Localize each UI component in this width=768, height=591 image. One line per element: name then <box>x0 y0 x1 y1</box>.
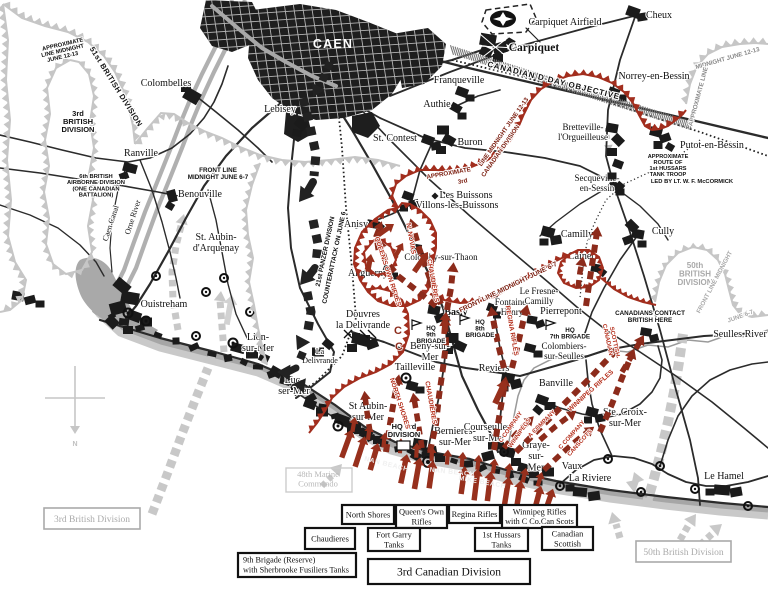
svg-text:La: La <box>316 347 325 356</box>
svg-text:with C Co.Can Scots: with C Co.Can Scots <box>505 517 574 526</box>
svg-text:Rifles: Rifles <box>411 517 431 526</box>
svg-text:Fort Garry: Fort Garry <box>376 531 412 540</box>
svg-text:Norrey-en-Bessin: Norrey-en-Bessin <box>618 71 689 82</box>
svg-text:with Sherbrooke Fusiliers Tank: with Sherbrooke Fusiliers Tanks <box>243 566 349 575</box>
svg-text:DIVISION: DIVISION <box>62 125 95 134</box>
svg-text:Camilly: Camilly <box>561 229 593 240</box>
svg-text:TANK TROOP: TANK TROOP <box>650 172 687 178</box>
svg-text:(ONE CANADIAN: (ONE CANADIAN <box>72 186 119 192</box>
svg-text:Buron: Buron <box>458 137 483 148</box>
svg-text:Winnipeg Rifles: Winnipeg Rifles <box>513 508 567 517</box>
svg-text:Camilly: Camilly <box>525 296 554 306</box>
svg-text:Villons-les-Buissons: Villons-les-Buissons <box>416 200 499 211</box>
svg-text:Pierrepont: Pierrepont <box>540 306 582 317</box>
svg-text:Ouistreham: Ouistreham <box>141 299 188 310</box>
svg-text:North Shores: North Shores <box>346 511 390 520</box>
svg-text:Delivrande: Delivrande <box>302 356 338 365</box>
svg-text:MIDNIGHT JUNE 6-7: MIDNIGHT JUNE 6-7 <box>188 174 249 181</box>
svg-text:la Delivrande: la Delivrande <box>336 320 391 331</box>
svg-text:Chaudieres: Chaudieres <box>311 535 349 544</box>
svg-text:Tailleville: Tailleville <box>395 362 436 373</box>
svg-text:St. Contest: St. Contest <box>373 133 417 144</box>
svg-text:Canadian: Canadian <box>552 530 584 539</box>
svg-text:Vaux: Vaux <box>562 461 583 472</box>
svg-text:C: C <box>394 325 402 337</box>
svg-text:Tanks: Tanks <box>492 540 512 549</box>
svg-text:Carpiquet Airfield: Carpiquet Airfield <box>528 17 601 28</box>
svg-text:Benouville: Benouville <box>178 189 222 200</box>
svg-text:3rd Canadian Division: 3rd Canadian Division <box>397 567 501 579</box>
svg-text:sur-Mer: sur-Mer <box>439 437 472 448</box>
svg-text:Queen's Own: Queen's Own <box>399 508 445 517</box>
svg-text:LED BY LT. W. F. McCORMICK: LED BY LT. W. F. McCORMICK <box>651 179 734 185</box>
svg-text:l'Orgueilleuse: l'Orgueilleuse <box>558 132 608 142</box>
svg-text:9th Brigade (Reserve): 9th Brigade (Reserve) <box>243 556 316 565</box>
svg-text:ser-Mer: ser-Mer <box>278 386 310 397</box>
svg-text:d'Arquenay: d'Arquenay <box>193 243 239 254</box>
svg-text:Le Hamel: Le Hamel <box>704 471 744 482</box>
svg-text:N: N <box>72 441 77 448</box>
svg-text:Commando: Commando <box>298 479 338 489</box>
svg-text:Carpiquet: Carpiquet <box>509 42 560 54</box>
svg-text:Colombelles: Colombelles <box>141 78 192 89</box>
svg-text:Ranville: Ranville <box>124 148 158 159</box>
svg-text:Scottish: Scottish <box>554 539 582 548</box>
svg-text:BRIGADE: BRIGADE <box>465 332 494 339</box>
svg-text:CAEN: CAEN <box>313 37 353 51</box>
svg-text:7th BRIGADE: 7th BRIGADE <box>550 334 590 341</box>
svg-text:BRIGADE: BRIGADE <box>416 338 445 345</box>
svg-text:Cully: Cully <box>652 226 674 237</box>
svg-text:BATTALION): BATTALION) <box>79 193 114 199</box>
svg-text:Regina Rifles: Regina Rifles <box>452 510 498 519</box>
svg-text:Franqueville: Franqueville <box>434 75 485 86</box>
svg-text:La Riviere: La Riviere <box>569 473 612 484</box>
svg-text:3rd British Division: 3rd British Division <box>54 515 130 525</box>
svg-text:Lebisey: Lebisey <box>264 104 296 115</box>
svg-text:St. Aubin-: St. Aubin- <box>195 232 236 243</box>
svg-text:1st Hussars: 1st Hussars <box>482 531 520 540</box>
svg-text:Le Fresne-: Le Fresne- <box>520 286 559 296</box>
svg-text:Bretteville-: Bretteville- <box>563 122 604 132</box>
svg-text:48th Marine: 48th Marine <box>297 469 339 479</box>
svg-text:C: C <box>395 341 403 353</box>
svg-text:AIRBORNE DIVISION: AIRBORNE DIVISION <box>67 180 125 186</box>
svg-text:6th BRITISH: 6th BRITISH <box>79 174 113 180</box>
svg-text:sur-Seulles: sur-Seulles <box>544 351 584 361</box>
svg-text:DIVISION: DIVISION <box>677 278 712 287</box>
svg-text:DIVISION: DIVISION <box>388 430 420 439</box>
svg-text:Banville: Banville <box>539 378 573 389</box>
svg-text:Colombiers-: Colombiers- <box>542 341 587 351</box>
svg-text:Putot-en-Bessin: Putot-en-Bessin <box>680 140 744 151</box>
svg-text:Tanks: Tanks <box>384 540 404 549</box>
svg-text:sur-Mer: sur-Mer <box>609 418 642 429</box>
svg-text:sur-: sur- <box>528 451 543 462</box>
svg-text:en-Sessin: en-Sessin <box>580 183 615 193</box>
svg-text:Cheux: Cheux <box>646 10 672 21</box>
svg-text:Douvres: Douvres <box>346 309 380 320</box>
svg-text:Authie: Authie <box>423 99 451 110</box>
svg-text:FRONT LINE: FRONT LINE <box>199 167 237 174</box>
svg-text:Seulles River: Seulles River <box>713 329 767 340</box>
svg-text:BRITISH HERE: BRITISH HERE <box>628 317 672 324</box>
svg-text:50th British Division: 50th British Division <box>643 548 723 558</box>
